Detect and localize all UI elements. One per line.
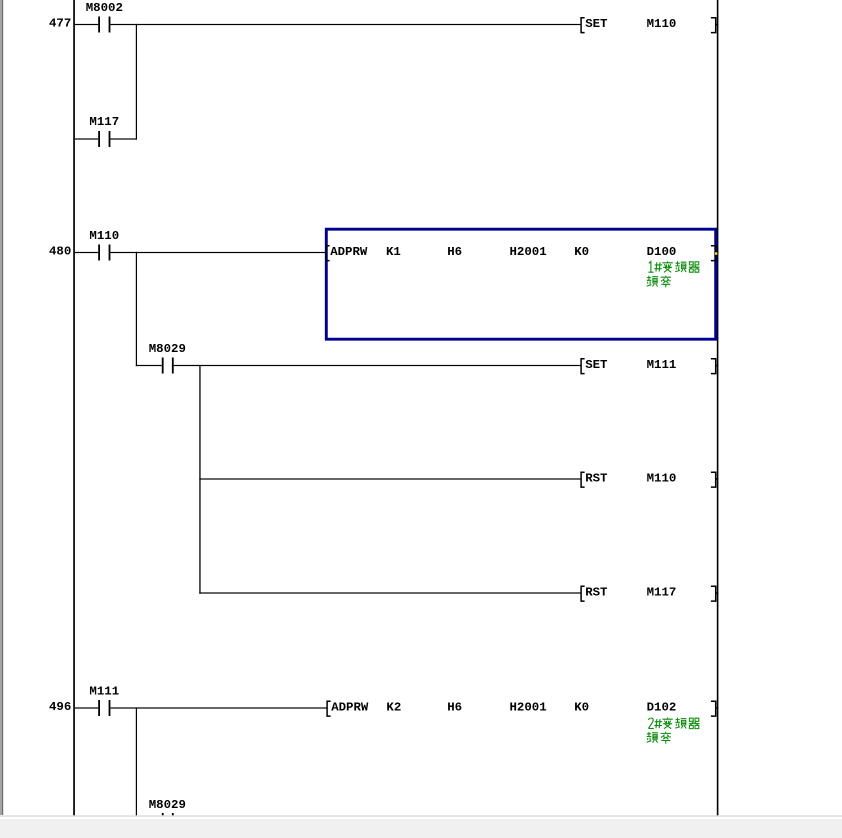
svg-text:M8002: M8002 [86, 1, 123, 15]
svg-text:K2: K2 [386, 701, 401, 715]
svg-text:M117: M117 [89, 115, 119, 129]
svg-text:M117: M117 [647, 586, 677, 600]
svg-text:K1: K1 [386, 245, 401, 259]
svg-text:M111: M111 [647, 358, 677, 372]
svg-text:D102: D102 [647, 701, 677, 715]
svg-text:M110: M110 [89, 229, 119, 243]
svg-text:K0: K0 [574, 245, 589, 259]
svg-text:SET: SET [585, 358, 608, 372]
svg-text:M110: M110 [647, 17, 677, 31]
svg-text:H2001: H2001 [510, 245, 547, 259]
svg-text:M111: M111 [89, 684, 119, 698]
svg-text:SET: SET [585, 17, 608, 31]
svg-text:M8029: M8029 [149, 342, 186, 356]
svg-text:M8029: M8029 [149, 798, 186, 812]
svg-text:RST: RST [585, 472, 608, 486]
svg-text:H6: H6 [447, 701, 462, 715]
svg-text:ADPRW: ADPRW [331, 701, 369, 715]
svg-text:D100: D100 [647, 245, 677, 259]
svg-text:H2001: H2001 [510, 701, 547, 715]
svg-text:477: 477 [49, 16, 71, 30]
svg-text:496: 496 [49, 700, 71, 714]
svg-text:M110: M110 [647, 472, 677, 486]
svg-text:ADPRW: ADPRW [330, 245, 368, 259]
svg-text:RST: RST [585, 586, 608, 600]
svg-text:480: 480 [49, 244, 71, 258]
svg-text:K0: K0 [574, 701, 589, 715]
svg-text:H6: H6 [447, 245, 462, 259]
